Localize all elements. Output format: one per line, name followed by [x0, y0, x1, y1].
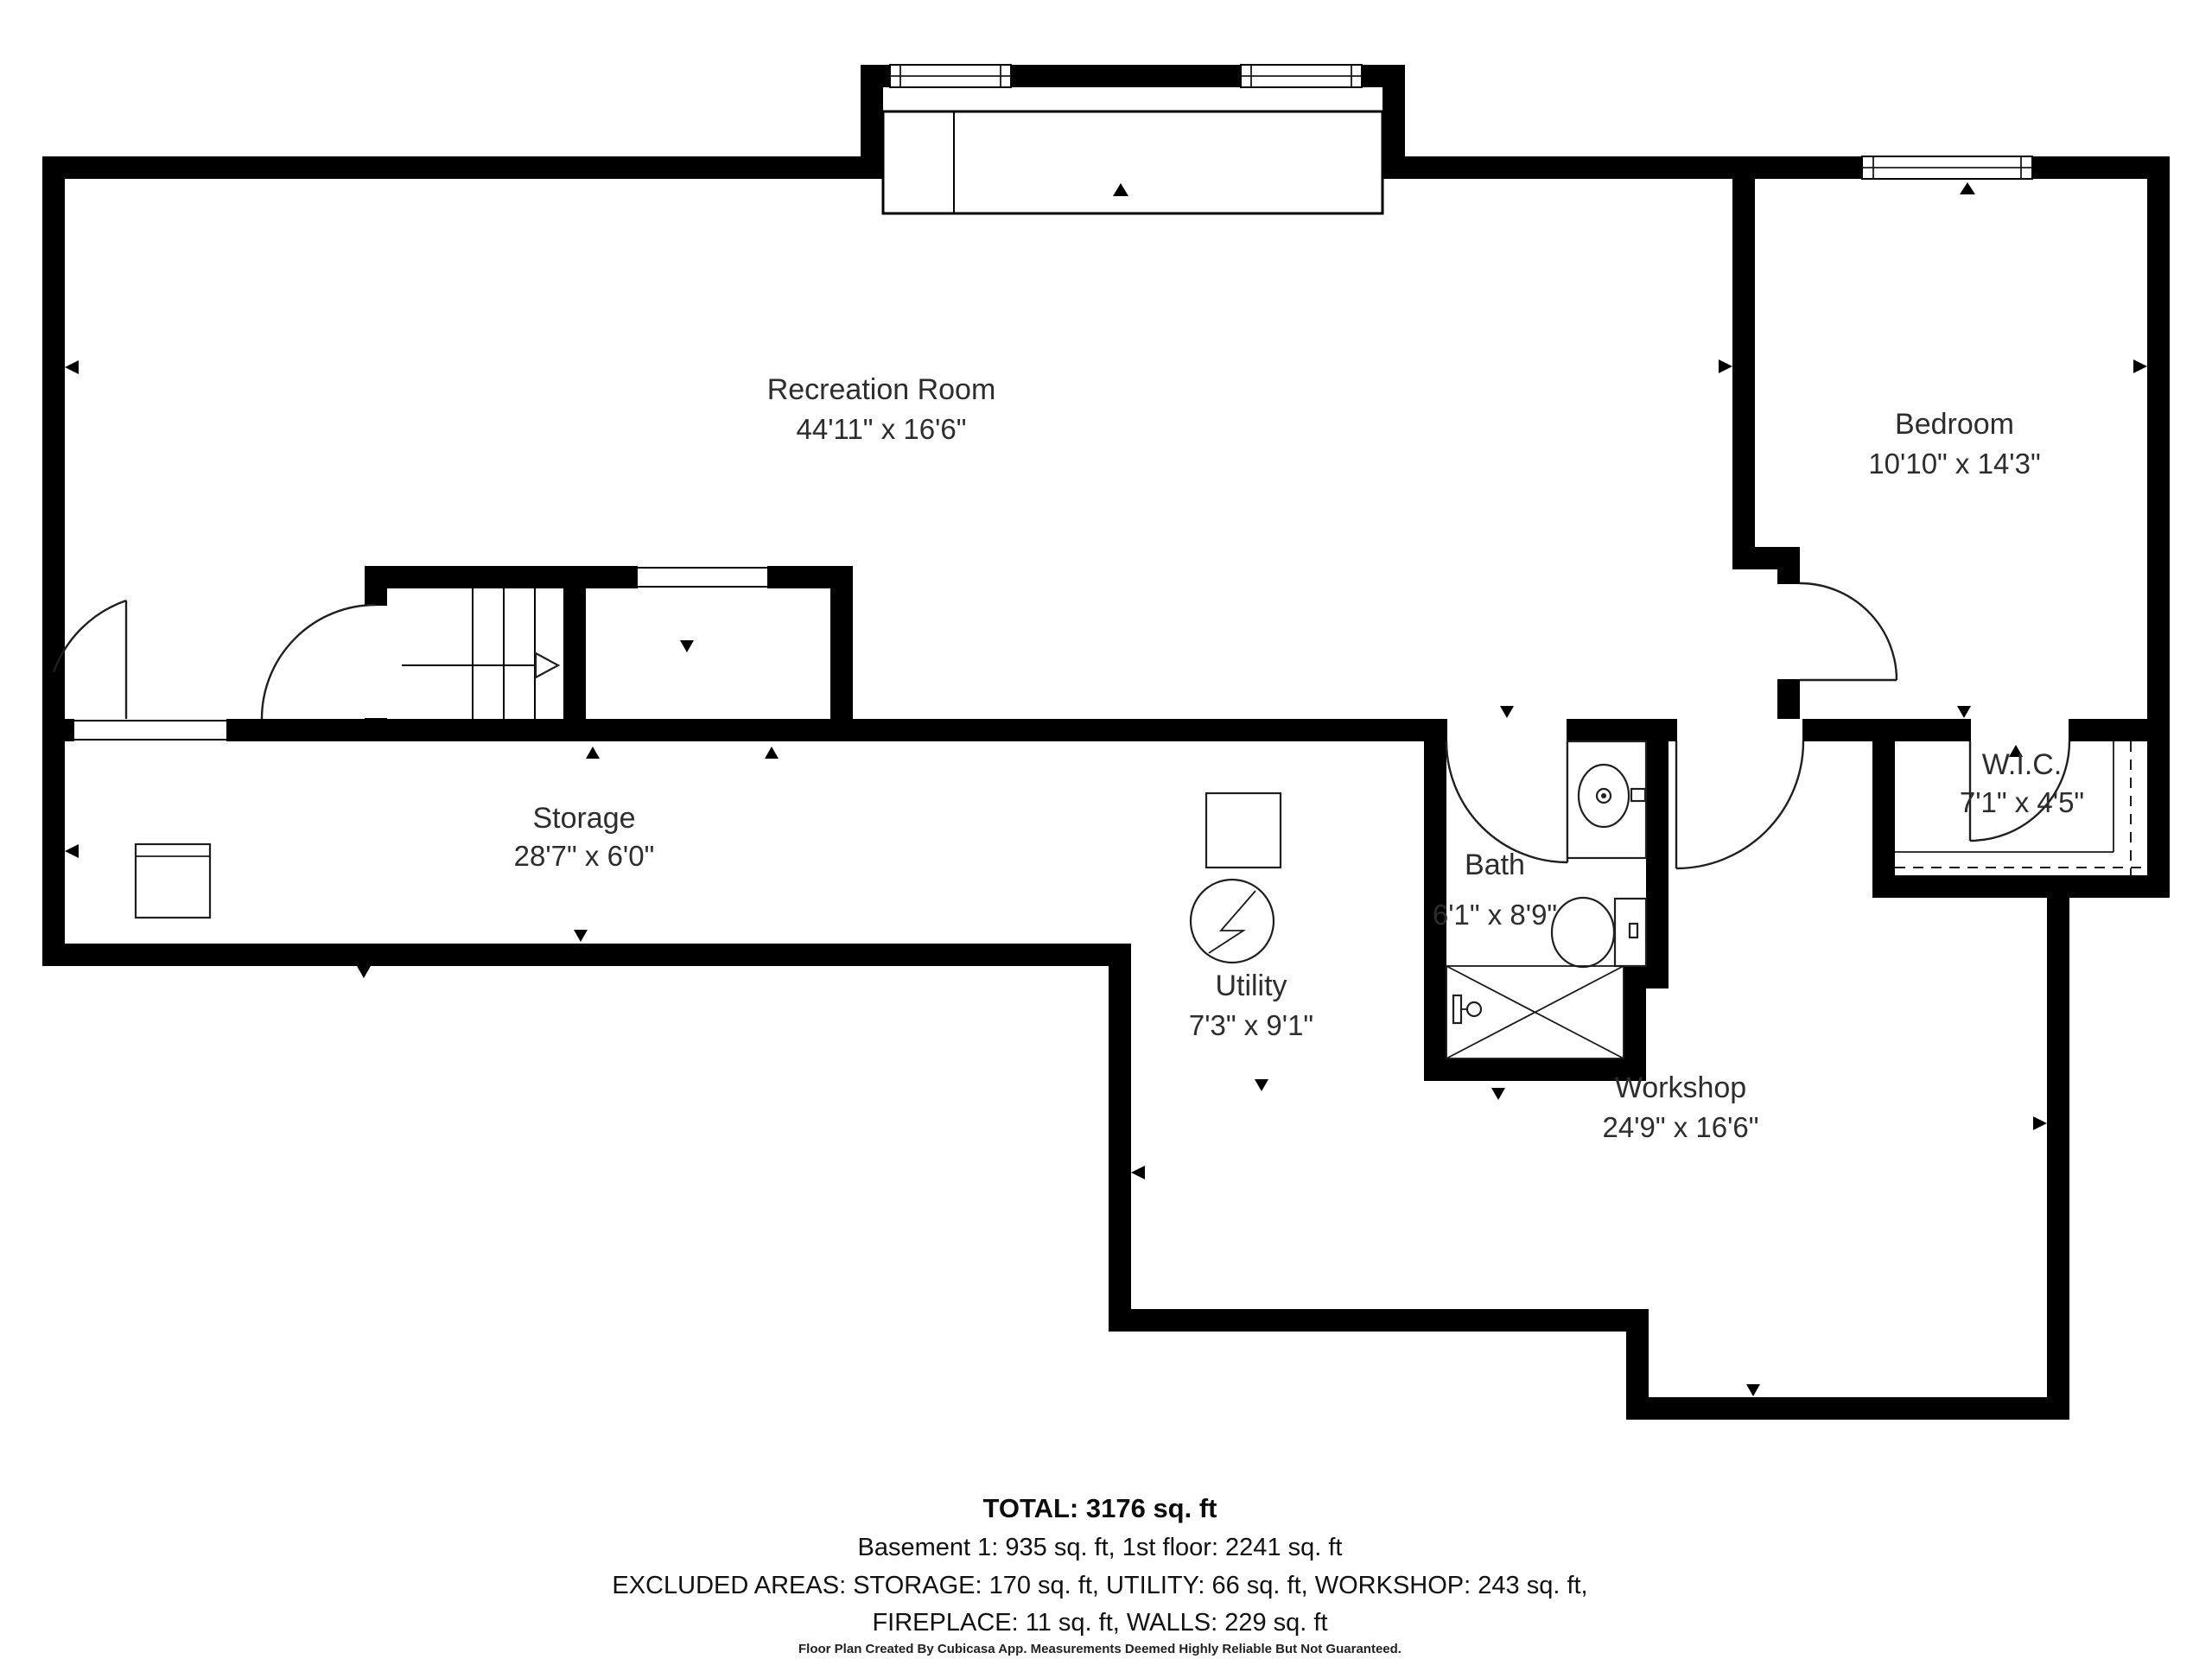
arrow-right-icon: [1719, 359, 1732, 373]
door-swing: [1446, 741, 1567, 862]
room-labels: Recreation Room 44'11" x 16'6" Bedroom 1…: [514, 373, 2084, 1143]
arrow-down-icon: [1957, 706, 1971, 718]
floor-plan-canvas: Recreation Room 44'11" x 16'6" Bedroom 1…: [0, 0, 2212, 1659]
room-dims-utility: 7'3" x 9'1": [1189, 1009, 1313, 1041]
arrow-down-icon: [1491, 1088, 1505, 1100]
room-label-bedroom: Bedroom: [1895, 408, 2014, 441]
arrow-up-icon: [1960, 182, 1975, 194]
arrow-down-icon: [357, 966, 371, 978]
excluded-areas-text-2: FIREPLACE: 11 sq. ft, WALLS: 229 sq. ft: [872, 1609, 1327, 1637]
walls: [42, 65, 2170, 1420]
window: [1241, 65, 1362, 87]
arrow-down-icon: [574, 930, 588, 942]
room-dims-bath: 6'1" x 8'9": [1433, 899, 1557, 931]
floor-plan-page: Recreation Room 44'11" x 16'6" Bedroom 1…: [0, 0, 2212, 1659]
excluded-areas-text: EXCLUDED AREAS: STORAGE: 170 sq. ft, UTI…: [612, 1572, 1587, 1599]
door-swing: [1800, 583, 1897, 680]
fixtures: [136, 741, 2147, 1058]
room-label-recreation: Recreation Room: [767, 373, 996, 406]
cased-opening: [637, 566, 768, 588]
window: [890, 65, 1011, 87]
room-label-workshop: Workshop: [1615, 1071, 1746, 1104]
shower-icon: [1446, 966, 1624, 1058]
door-opening: [1970, 719, 2069, 741]
arrow-up-icon: [586, 747, 600, 759]
room-dims-workshop: 24'9" x 16'6": [1603, 1111, 1759, 1143]
room-label-storage: Storage: [532, 802, 635, 835]
sink-icon: [1567, 741, 1646, 858]
door-opening: [365, 605, 387, 719]
stairs: [402, 588, 558, 719]
arrow-left-icon: [65, 360, 79, 374]
arrow-left-icon: [1131, 1166, 1145, 1179]
room-label-utility: Utility: [1215, 969, 1287, 1002]
room-dims-storage: 28'7" x 6'0": [514, 840, 655, 872]
total-area-text: TOTAL: 3176 sq. ft: [982, 1493, 1217, 1523]
arrow-down-icon: [1255, 1079, 1268, 1091]
disclaimer-text: Floor Plan Created By Cubicasa App. Meas…: [798, 1642, 1402, 1656]
door-opening: [1676, 719, 1803, 741]
floor-areas-text: Basement 1: 935 sq. ft, 1st floor: 2241 …: [858, 1534, 1343, 1561]
door-swing: [262, 605, 376, 719]
room-label-bath: Bath: [1465, 849, 1525, 881]
arrow-right-icon: [2133, 359, 2147, 373]
arrow-up-icon: [765, 747, 779, 759]
arrow-right-icon: [2033, 1116, 2047, 1130]
fireplace: [883, 111, 1382, 213]
window: [1862, 156, 2032, 179]
door-swing: [1676, 741, 1803, 868]
opening-arrows: [65, 182, 2147, 1396]
room-label-wic: W.I.C.: [1982, 748, 2063, 781]
room-dims-bedroom: 10'10" x 14'3": [1868, 448, 2040, 480]
furnace-icon: [1206, 793, 1281, 868]
door-opening: [1446, 719, 1567, 741]
arrow-down-icon: [680, 640, 694, 652]
arrow-down-icon: [1746, 1384, 1760, 1396]
door-opening: [1777, 583, 1800, 680]
arrow-down-icon: [1500, 706, 1514, 718]
toilet-icon: [1552, 898, 1646, 967]
room-dims-recreation: 44'11" x 16'6": [797, 413, 967, 445]
water-heater-icon: [1191, 880, 1274, 963]
storage-appliance-icon: [136, 844, 210, 918]
cased-opening: [73, 719, 227, 741]
summary-block: TOTAL: 3176 sq. ft Basement 1: 935 sq. f…: [612, 1493, 1587, 1656]
room-dims-wic: 7'1" x 4'5": [1960, 786, 2084, 818]
arrow-left-icon: [65, 844, 79, 858]
